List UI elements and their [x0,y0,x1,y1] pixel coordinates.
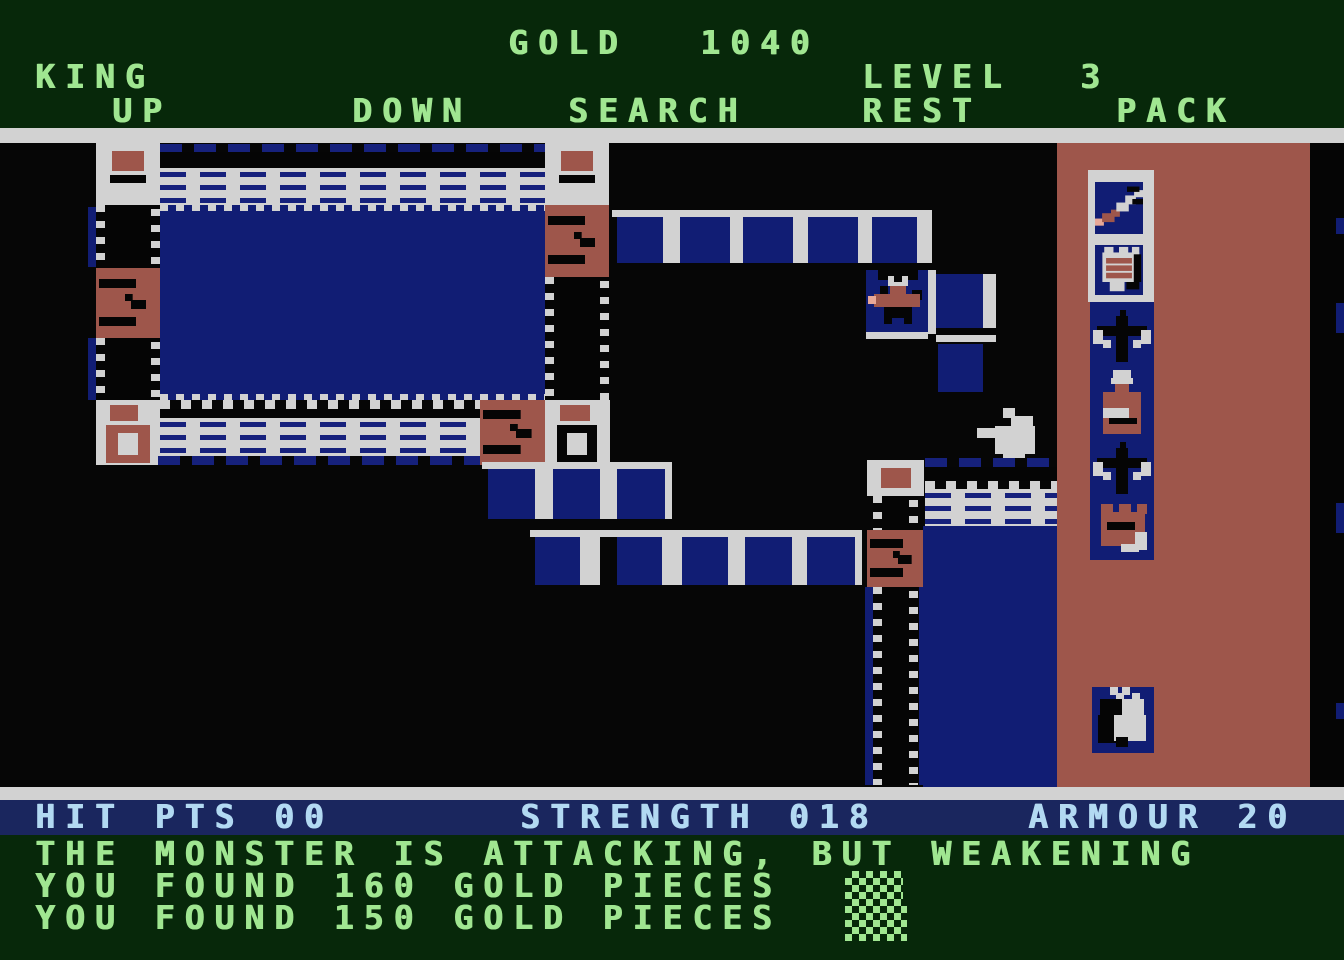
corner-post [867,460,924,496]
wall-hatched [925,489,1057,526]
corridor-joint [728,530,745,585]
game-screen: GOLD 1040 KING LEVEL 3 UP DOWN SEARCH RE… [0,0,1344,960]
corridor-joint [600,462,617,519]
wall-ladder [873,587,918,785]
corridor-tile [553,469,600,519]
wall-ladder [545,277,609,400]
corner-brick [881,468,911,488]
corner-post [545,400,610,465]
corridor-joint [928,270,936,334]
corridor-tile [617,217,663,263]
wall-dash-row [160,400,480,409]
corridor-joint [855,530,862,585]
corner-post [96,143,160,205]
corridor-tile [488,469,535,519]
map-right-edge [1310,143,1344,787]
corner-brick [560,405,590,421]
door-east [545,205,609,277]
corridor-joint [665,462,672,519]
status-bar: HIT PTS 00 STRENGTH 018 ARMOUR 20 [0,800,1344,835]
door-frame-center [567,433,587,455]
treasure-glyph-icon [845,899,907,941]
corner-post [545,143,609,205]
corridor-joint [858,210,872,263]
level-value: 3 [1080,60,1110,94]
corner-shadow [110,175,146,183]
map-nub [1336,218,1344,234]
corridor-joint [983,274,996,328]
corridor-tile [682,537,728,585]
wall-dash-row [925,481,1057,489]
crossbow-icon [1091,310,1153,366]
level-label: LEVEL [862,60,1011,94]
gold-value: 1040 [700,26,819,60]
corridor-edge [612,210,932,217]
wall-hatched [160,168,545,205]
king-label: KING [35,60,154,94]
monster-sprite[interactable] [975,408,1045,465]
wall-dash-row [925,458,1057,467]
command-down[interactable]: DOWN [352,94,471,128]
top-separator [0,128,1344,143]
corridor-joint [580,530,600,585]
player-sprite[interactable] [866,270,928,332]
door-south [480,400,545,465]
corner-brick [561,151,593,171]
corridor-tile [808,217,858,263]
command-search[interactable]: SEARCH [568,94,747,128]
shield-striped-icon [1095,245,1143,295]
wall-dash-row [160,144,545,152]
room-floor [923,526,1057,787]
crossbow-icon [1091,442,1153,498]
sword-icon [1095,182,1143,232]
inventory-sidebar [1057,143,1310,787]
hit-points-stat: HIT PTS 00 [35,800,334,834]
door-corridor [867,530,924,587]
wall-band [925,467,1057,481]
potion-icon [1091,370,1153,436]
message-log: THE MONSTER IS ATTACKING, BUT WEAKENING … [0,835,1344,960]
corridor-tile [680,217,730,263]
map-nub [1336,303,1344,333]
room-floor [160,205,545,400]
corner-brick [110,405,138,421]
message-line: YOU FOUND 150 GOLD PIECES [35,901,782,935]
corridor-tile [872,217,917,263]
armour-stat: ARMOUR 20 [1028,800,1297,834]
sidebar-item-shield-striped[interactable] [1095,245,1143,295]
map-nub [1336,503,1344,533]
dungeon-map [0,143,1344,787]
corridor-joint [535,462,553,519]
door-west [96,268,160,338]
door-frame [106,425,150,463]
corner-post [96,400,160,465]
inventory-frame [1088,170,1154,302]
player-tile [866,270,928,332]
corner-shadow [559,175,595,183]
corridor-tile [535,537,580,585]
corridor-tile [617,469,665,519]
strength-stat: STRENGTH 018 [520,800,878,834]
shield-icon [1093,504,1151,556]
sidebar-item-creature[interactable] [1092,687,1154,753]
corridor-joint [662,530,682,585]
gold-label: GOLD [508,26,627,60]
wall-band [160,152,545,168]
corridor-edge [866,332,928,339]
sidebar-item-shield[interactable] [1093,504,1151,560]
wall-edge [865,587,873,785]
corner-brick [112,151,144,171]
sidebar-item-crossbow[interactable] [1091,310,1153,370]
corridor-joint [663,210,680,263]
sidebar-item-sword[interactable] [1095,182,1143,234]
wall-ladder [873,496,918,530]
top-command-bar: GOLD 1040 KING LEVEL 3 UP DOWN SEARCH RE… [0,0,1344,128]
door-frame-center [118,433,138,455]
corridor-joint [792,530,807,585]
command-pack[interactable]: PACK [1116,94,1235,128]
wall-hatched [160,418,480,456]
treasure-glyph-icon [845,871,903,901]
corridor-edge [936,335,996,342]
corridor-joint [917,210,932,263]
corridor-tile [745,537,792,585]
corridor-tile [936,274,983,328]
sidebar-item-potion[interactable] [1091,370,1153,440]
corridor-tile [807,537,855,585]
corridor-tile [938,344,983,392]
sidebar-item-crossbow-2[interactable] [1091,442,1153,502]
corridor-joint [730,210,743,263]
door-frame [557,425,597,463]
wall-ladder [96,338,160,400]
command-up[interactable]: UP [112,94,172,128]
creature-icon [1092,687,1154,753]
corridor-tile [617,537,662,585]
corridor-joint [793,210,808,263]
command-rest[interactable]: REST [862,94,981,128]
map-nub [1336,703,1344,719]
inventory-column [1090,302,1154,560]
wall-band [160,409,480,418]
wall-ladder [96,205,160,268]
corridor-tile [743,217,793,263]
corridor-edge [482,462,668,469]
